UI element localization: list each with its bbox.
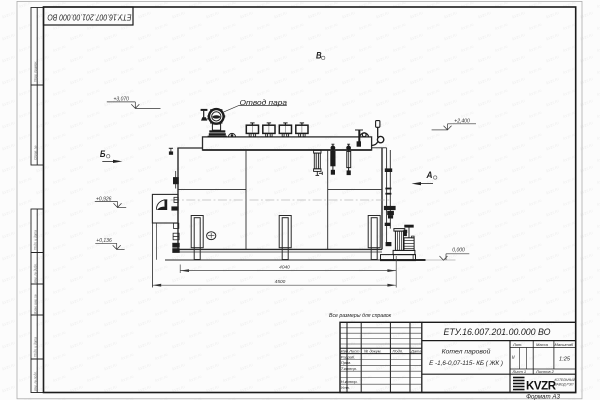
svg-text:Н.контр.: Н.контр. <box>341 379 358 384</box>
svg-text:Б: Б <box>100 148 106 159</box>
svg-text:Котел паровой: Котел паровой <box>442 348 491 356</box>
svg-text:и: и <box>512 355 515 361</box>
svg-text:КОТЕЛЬНЫЙ: КОТЕЛЬНЫЙ <box>555 378 576 382</box>
svg-text:4040: 4040 <box>279 265 290 271</box>
svg-text:Подп.: Подп. <box>393 349 404 354</box>
svg-text:Подп. и дата: Подп. и дата <box>33 337 37 357</box>
svg-text:В: В <box>316 50 322 61</box>
svg-text:ЕТУ.16.007.201.00.000 ВО: ЕТУ.16.007.201.00.000 ВО <box>444 327 551 338</box>
svg-text:Изм.Лист: Изм.Лист <box>341 349 360 354</box>
svg-text:Разраб.: Разраб. <box>341 354 355 359</box>
svg-text:Масса: Масса <box>536 342 549 347</box>
svg-text:Формат А3: Формат А3 <box>526 393 560 400</box>
svg-text:Утв.: Утв. <box>341 385 350 390</box>
svg-text:Е -1,6-0,07-115- КБ ( ЖК ): Е -1,6-0,07-115- КБ ( ЖК ) <box>429 360 503 367</box>
svg-text:Справ. №: Справ. № <box>33 145 37 160</box>
svg-text:ЕТУ.16.007.201.00.000 ВО: ЕТУ.16.007.201.00.000 ВО <box>47 13 132 22</box>
svg-text:Инв. № дубл.: Инв. № дубл. <box>33 263 37 283</box>
svg-text:KVZR: KVZR <box>526 380 557 392</box>
svg-text:+3,070: +3,070 <box>114 97 130 103</box>
svg-text:Масштаб: Масштаб <box>555 342 574 347</box>
svg-text:Т.контр.: Т.контр. <box>341 366 357 371</box>
svg-text:+0,136: +0,136 <box>96 238 112 244</box>
svg-text:Лит.: Лит. <box>512 342 522 347</box>
svg-text:+0,926: +0,926 <box>96 196 112 202</box>
svg-text:4500: 4500 <box>275 279 286 285</box>
svg-text:Листов 2: Листов 2 <box>535 369 555 374</box>
svg-text:Пров.: Пров. <box>341 360 352 365</box>
svg-text:0,000: 0,000 <box>452 248 465 254</box>
svg-text:Перв. примен.: Перв. примен. <box>33 61 37 82</box>
svg-text:1:25: 1:25 <box>559 357 571 363</box>
svg-text:Дата: Дата <box>410 349 422 354</box>
svg-text:+2,400: +2,400 <box>454 119 470 125</box>
svg-text:Подп. и дата: Подп. и дата <box>33 230 37 250</box>
svg-text:ЗАВОД РЭП: ЗАВОД РЭП <box>555 383 575 387</box>
svg-text:А: А <box>426 169 433 180</box>
svg-text:Инв. № подл.: Инв. № подл. <box>33 371 37 391</box>
svg-text:Все размеры для справок: Все размеры для справок <box>329 313 392 319</box>
svg-text:№ докум.: № докум. <box>364 349 382 354</box>
svg-text:Лист 1: Лист 1 <box>512 369 527 374</box>
svg-text:Взам. инв. №: Взам. инв. № <box>33 294 37 314</box>
